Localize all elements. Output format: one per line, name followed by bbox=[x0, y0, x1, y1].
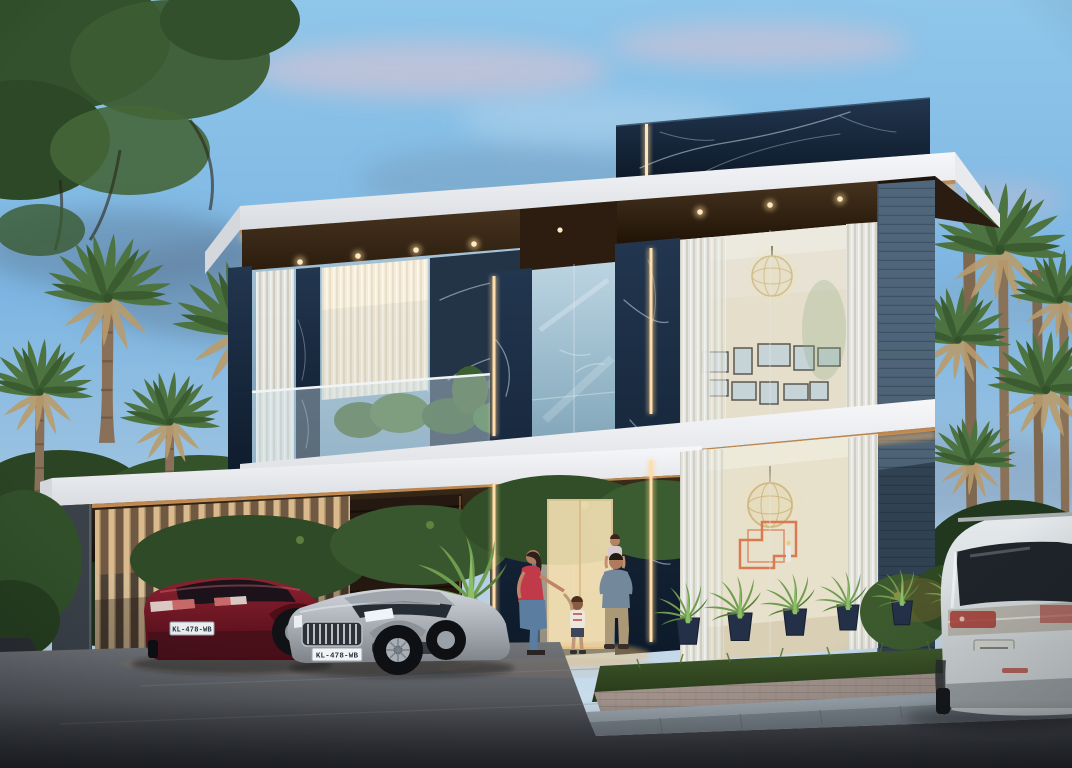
vignette bbox=[0, 0, 1072, 768]
scene-canvas: KL-478-WB KL-478-WB bbox=[0, 0, 1072, 768]
villa-rendering: KL-478-WB KL-478-WB bbox=[0, 0, 1072, 768]
foreground-shade bbox=[0, 700, 1072, 768]
